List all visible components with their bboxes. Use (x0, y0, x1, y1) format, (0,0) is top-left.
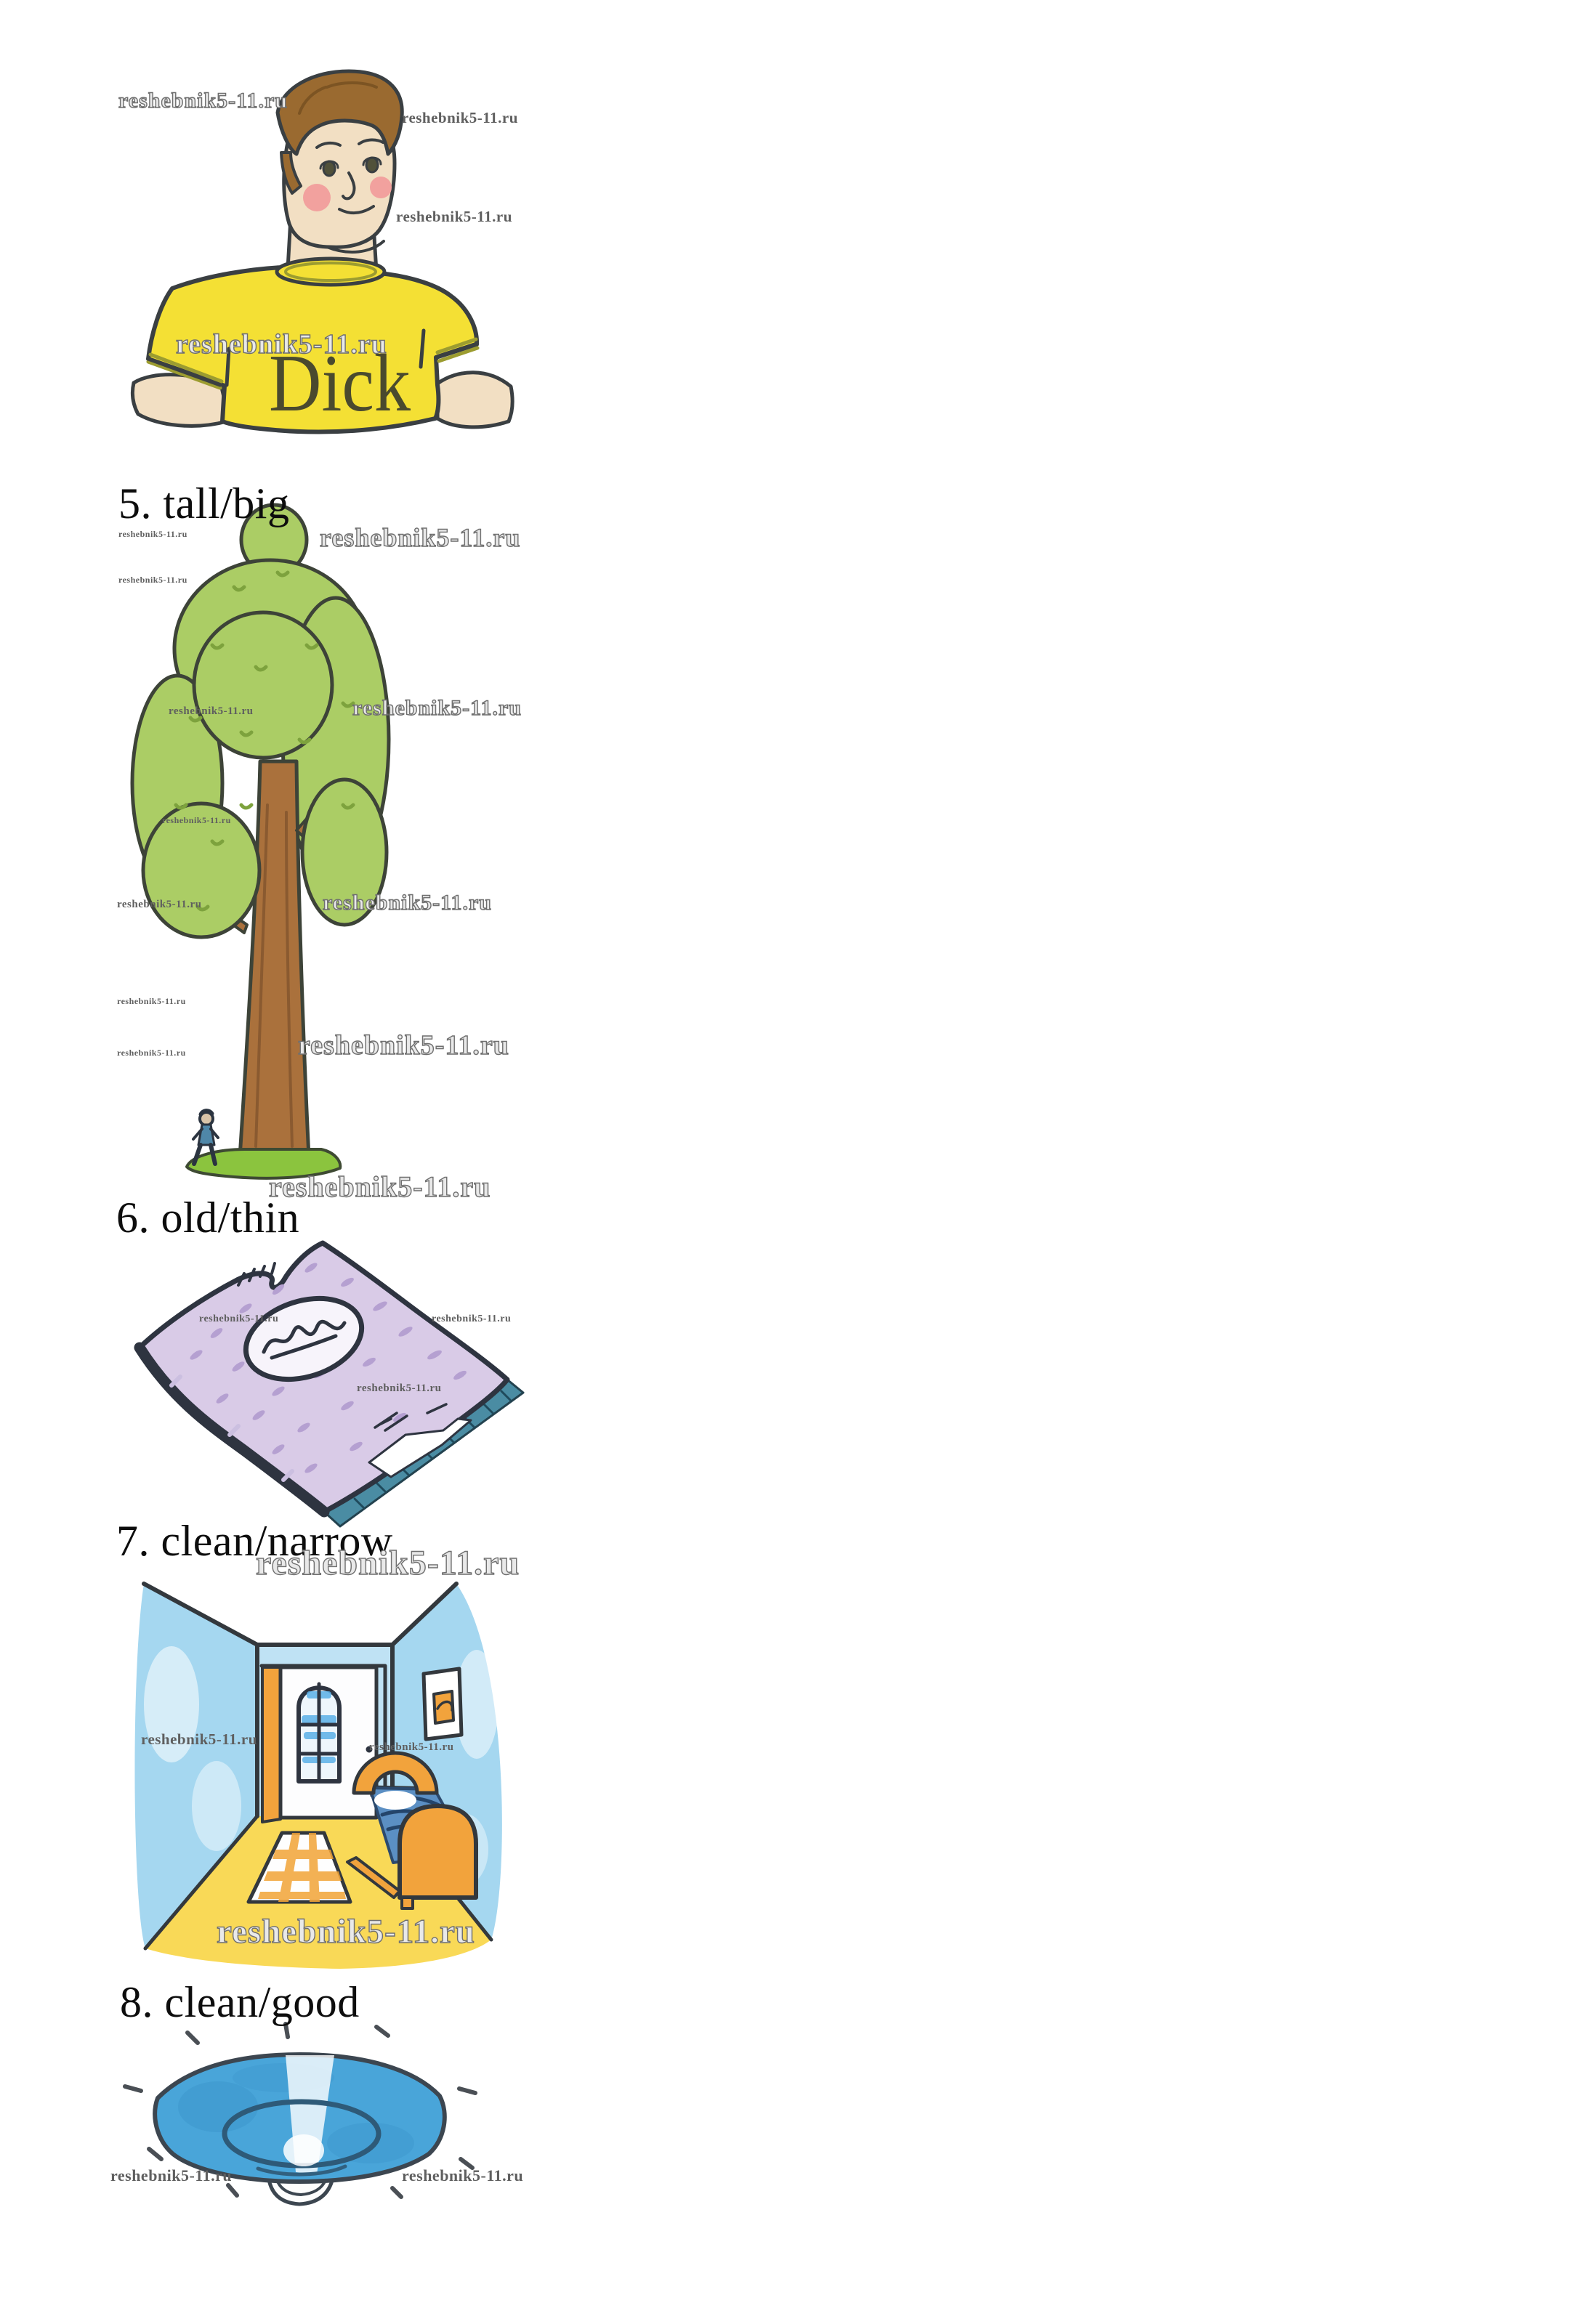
watermark: reshebnik5-11.ru (117, 1048, 186, 1057)
watermark: reshebnik5-11.ru (357, 1383, 442, 1394)
watermark: reshebnik5-11.ru (169, 706, 254, 717)
watermark: reshebnik5-11.ru (402, 110, 518, 126)
watermark: reshebnik5-11.ru (110, 2168, 232, 2184)
watermark: reshebnik5-11.ru (298, 1032, 509, 1059)
watermark: reshebnik5-11.ru (402, 2168, 523, 2184)
watermark: reshebnik5-11.ru (199, 1314, 278, 1324)
watermark: reshebnik5-11.ru (369, 1742, 454, 1753)
tree-trunk (240, 761, 309, 1157)
watermark: reshebnik5-11.ru (176, 331, 387, 358)
document-page: Dick (0, 0, 1574, 2324)
watermark: reshebnik5-11.ru (352, 697, 522, 719)
door (262, 1666, 385, 1822)
boy-right-arm (437, 373, 512, 427)
watermark: reshebnik5-11.ru (117, 899, 202, 910)
bed-footboard (400, 1806, 476, 1898)
watermark: reshebnik5-11.ru (118, 90, 288, 112)
book-cover (140, 1243, 507, 1512)
watermark: reshebnik5-11.ru (217, 1915, 475, 1949)
watermark: reshebnik5-11.ru (323, 892, 492, 914)
tree-illustration (125, 500, 401, 1183)
watermark: reshebnik5-11.ru (269, 1173, 491, 1202)
watermark: reshebnik5-11.ru (256, 1546, 520, 1581)
door-jamb (262, 1667, 281, 1822)
watermark: reshebnik5-11.ru (118, 530, 187, 538)
watermark: reshebnik5-11.ru (320, 525, 520, 551)
watermark: reshebnik5-11.ru (141, 1732, 257, 1747)
plate-center-highlight (283, 2134, 324, 2166)
picture-frame (424, 1669, 461, 1739)
watermark: reshebnik5-11.ru (432, 1314, 511, 1324)
watermark: reshebnik5-11.ru (118, 575, 187, 584)
caption-item-8: 8. clean/good (120, 1980, 360, 2025)
bed-pillow (374, 1791, 416, 1810)
watermark: reshebnik5-11.ru (162, 816, 231, 825)
watermark: reshebnik5-11.ru (117, 997, 186, 1005)
bed-leg (402, 1898, 413, 1908)
caption-item-5: 5. tall/big (118, 481, 289, 527)
boy-cheek-right (370, 177, 392, 198)
book-illustration (129, 1237, 525, 1528)
boy-cheek-left (303, 184, 331, 211)
watermark: reshebnik5-11.ru (396, 209, 512, 224)
